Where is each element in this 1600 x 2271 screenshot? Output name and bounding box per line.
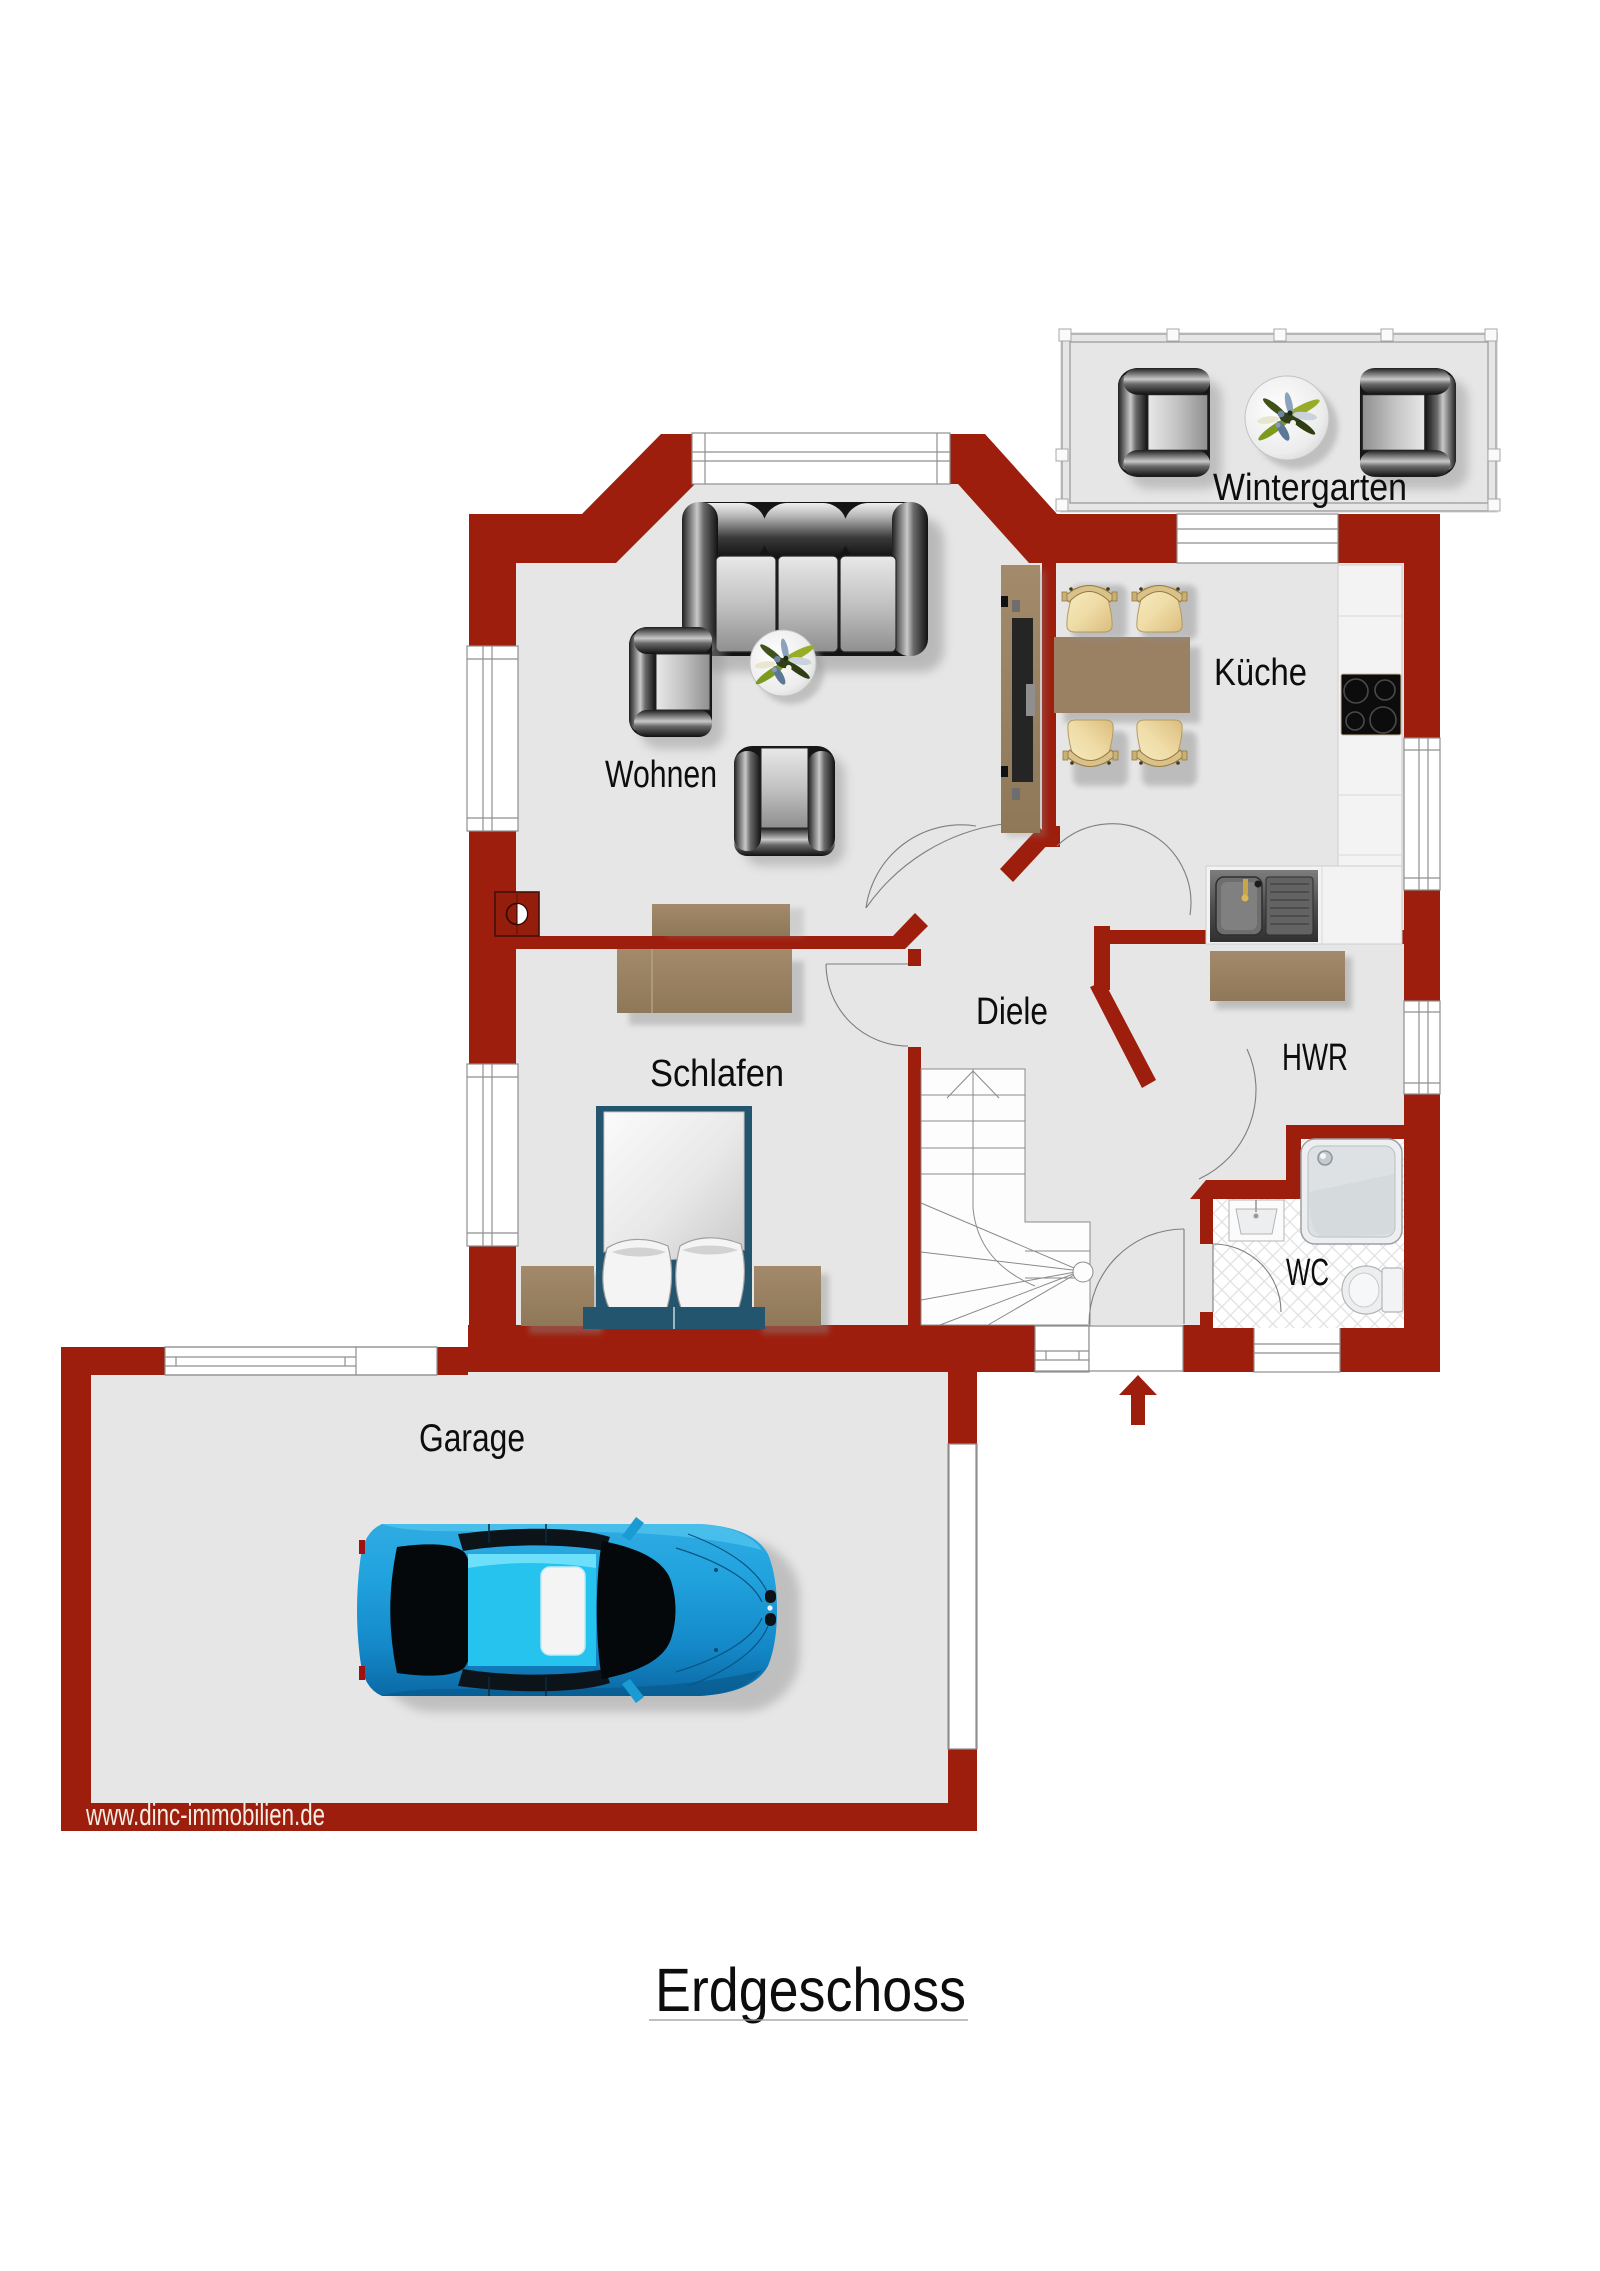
- svg-text:www.dinc-immobilien.de: www.dinc-immobilien.de: [85, 1797, 325, 1832]
- svg-text:WC: WC: [1286, 1252, 1329, 1294]
- svg-text:Wohnen: Wohnen: [605, 754, 717, 796]
- svg-text:Garage: Garage: [419, 1417, 525, 1460]
- svg-text:Diele: Diele: [976, 991, 1048, 1033]
- svg-text:Schlafen: Schlafen: [650, 1053, 784, 1095]
- svg-text:HWR: HWR: [1282, 1037, 1348, 1079]
- svg-text:Wintergarten: Wintergarten: [1213, 467, 1407, 509]
- svg-text:Küche: Küche: [1214, 652, 1307, 694]
- svg-text:Erdgeschoss: Erdgeschoss: [655, 1956, 966, 2024]
